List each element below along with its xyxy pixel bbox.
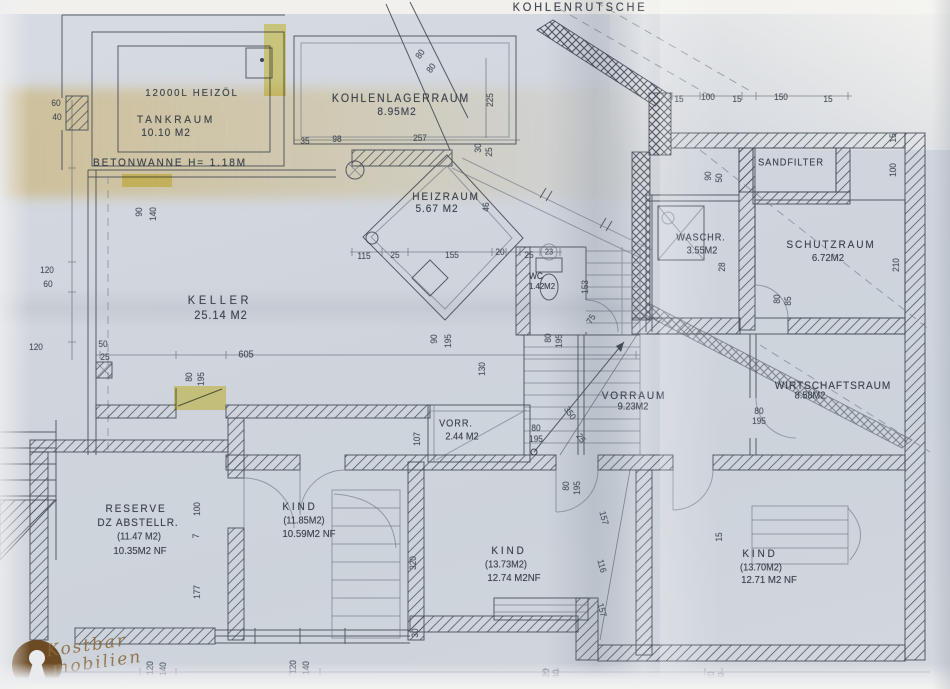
dimension-label: 46 — [481, 202, 491, 211]
dimension-label: 40 — [551, 669, 561, 678]
dimension-label: 195 — [572, 481, 582, 495]
dimension-label: 25 — [574, 431, 587, 444]
room-label: 12000L HEIZÖL — [145, 87, 238, 99]
dimension-label: 80 — [543, 333, 553, 342]
dimension-label: 90 — [703, 171, 713, 180]
dimension-label: 157 — [595, 602, 608, 618]
room-label: DZ ABSTELLR. — [97, 517, 178, 529]
room-label: KOHLENRUTSCHE — [513, 0, 648, 14]
dimension-label: 15 — [732, 94, 741, 104]
dimension-label: 107 — [412, 432, 422, 446]
dimension-label: 100 — [888, 163, 898, 177]
dimension-label: 195 — [752, 416, 766, 426]
dimension-label: 15 — [823, 94, 832, 104]
room-label: TANKRAUM — [137, 114, 215, 126]
room-label: KELLER — [188, 293, 252, 307]
dimension-label: 25 — [524, 250, 533, 260]
room-label: 3.55M2 — [687, 246, 718, 257]
dimension-label: 80 — [531, 423, 540, 433]
dimension-label: 15 — [674, 94, 683, 104]
dimension-label: 75 — [584, 313, 597, 326]
dimension-label: 80 — [772, 294, 782, 303]
dimension-label: 40 — [716, 672, 726, 681]
dimension-label: 177 — [192, 585, 202, 599]
dimension-label: 116 — [595, 558, 608, 573]
dimension-label: 80 — [424, 61, 437, 74]
dimension-label: 20 — [495, 247, 504, 257]
dimension-label: 20 — [706, 671, 716, 680]
room-label: 1.42M2 — [529, 281, 555, 291]
dimension-label: 155 — [445, 250, 459, 260]
dimension-label: 320 — [408, 556, 418, 570]
room-label: WC — [529, 271, 543, 281]
room-label: 25.14 M2 — [194, 308, 247, 322]
dimension-label: 40 — [52, 112, 61, 122]
dimension-label: 130 — [477, 362, 487, 376]
dimension-label: 50 — [98, 339, 107, 349]
room-label: 12.74 M2NF — [487, 572, 540, 584]
dimension-label: 90 — [134, 207, 144, 216]
dimension-label: 195 — [529, 434, 543, 444]
room-label: 6.72M2 — [812, 252, 844, 264]
dimension-label: 120 — [40, 265, 54, 275]
room-label: (11.47 M2) — [117, 532, 161, 543]
dimension-label: 257 — [413, 133, 427, 143]
room-label: (13.73M2) — [485, 560, 527, 571]
room-label: KIND — [742, 548, 777, 560]
dimension-label: 140 — [148, 207, 158, 221]
dimension-label: 25 — [484, 147, 494, 156]
dimension-label: 28 — [717, 262, 727, 271]
dimension-label: 157 — [597, 510, 610, 526]
dimension-label: 30 — [410, 628, 420, 637]
dimension-label: 30 — [473, 143, 483, 152]
dimension-label: 35 — [300, 136, 309, 146]
dimension-label: 80 — [184, 372, 194, 381]
room-label: SCHUTZRAUM — [786, 239, 875, 251]
dimension-label: 60 — [43, 279, 52, 289]
dimension-label: 195 — [554, 334, 564, 348]
room-label: (13.70M2) — [740, 563, 782, 574]
dimension-label: 98 — [332, 134, 341, 144]
dimension-label: 153 — [580, 280, 590, 294]
dimension-label: 100 — [192, 502, 202, 516]
dimension-label: 605 — [238, 350, 253, 361]
dimension-label: 120 — [29, 342, 43, 352]
room-label: WIRTSCHAFTSRAUM — [775, 380, 892, 392]
room-label: 8.95M2 — [377, 106, 416, 118]
room-label: KIND — [282, 501, 317, 513]
dimension-label: 23 — [545, 248, 553, 257]
dimension-label: 350 — [562, 404, 578, 421]
room-label: (11.85M2) — [283, 516, 324, 527]
dimension-label: 120 — [145, 661, 155, 675]
dimension-label: 210 — [891, 258, 901, 272]
dimension-label: 50 — [714, 173, 724, 182]
dimension-label: 60 — [51, 98, 60, 108]
dimension-label: 85 — [783, 296, 793, 305]
room-label: KOHLENLAGERRAUM — [332, 93, 470, 105]
room-label: 10.35M2 NF — [113, 545, 166, 557]
dimension-label: 25 — [390, 250, 399, 260]
room-label: 9.23M2 — [618, 402, 649, 413]
room-label: RESERVE — [105, 503, 166, 515]
dimension-label: 100 — [701, 92, 715, 102]
room-label: 8.58M2 — [795, 391, 826, 402]
dimension-label: 120 — [288, 660, 298, 674]
dimension-label: 195 — [196, 372, 206, 386]
dimension-label: 25 — [100, 352, 109, 362]
room-label: WASCHR. — [676, 233, 726, 244]
room-label: 12.71 M2 NF — [741, 574, 797, 586]
dimension-label: 140 — [158, 662, 168, 676]
dimension-label: 15 — [888, 133, 898, 142]
room-label: VORRAUM — [602, 390, 667, 402]
dimension-label: 80 — [561, 481, 571, 490]
dimension-label: 150 — [774, 92, 788, 102]
dimension-label: 225 — [485, 93, 495, 107]
floor-plan-scan: 12000L HEIZÖLTANKRAUM10.10 M2BETONWANNE … — [0, 0, 950, 689]
room-label: 5.67 M2 — [415, 203, 458, 215]
room-label: 2.44 M2 — [445, 432, 478, 443]
dimension-label: 20 — [541, 668, 551, 677]
room-label: 10.10 M2 — [141, 127, 191, 139]
dimension-label: 90 — [429, 334, 439, 343]
dimension-label: 140 — [301, 661, 311, 675]
label-layer: 12000L HEIZÖLTANKRAUM10.10 M2BETONWANNE … — [0, 0, 950, 689]
dimension-label: 195 — [443, 334, 453, 348]
dimension-label: 15 — [714, 532, 724, 541]
dimension-label: 7 — [191, 534, 201, 539]
room-label: VORR. — [439, 419, 473, 430]
dimension-label: 115 — [357, 251, 370, 261]
dimension-label: 80 — [754, 406, 763, 416]
room-label: 10.59M2 NF — [282, 528, 335, 540]
room-label: KIND — [491, 545, 526, 557]
room-label: HEIZRAUM — [412, 191, 480, 203]
room-label: SANDFILTER — [758, 158, 824, 169]
dimension-label: 80 — [413, 47, 426, 60]
room-label: BETONWANNE H= 1.18M — [93, 157, 247, 169]
